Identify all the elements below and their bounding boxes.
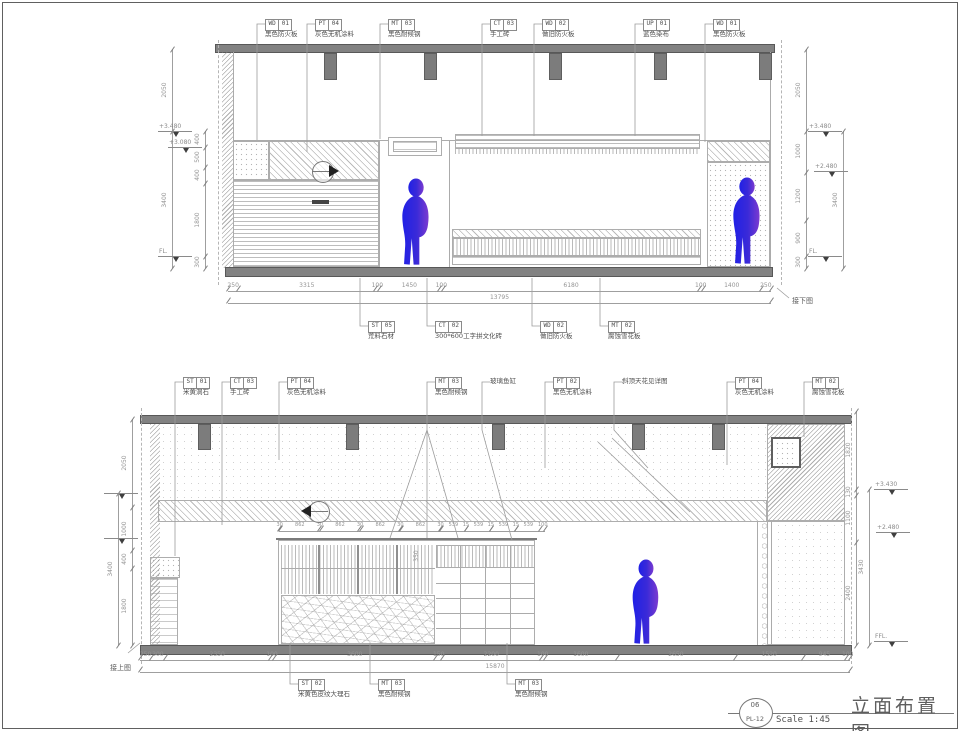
dim-label: 1400: [724, 283, 739, 289]
dim-label: 1200: [796, 188, 802, 203]
dim-label: 2400: [846, 586, 852, 601]
dim-label: 300: [195, 256, 201, 267]
callout-code: 04: [749, 378, 761, 388]
level-triangle: [891, 533, 897, 538]
dim-label: 130: [846, 486, 852, 497]
callout-code: 03: [504, 20, 516, 30]
callout-code: PT: [554, 378, 567, 388]
dim-line: [118, 493, 119, 645]
door-sign-inner: [393, 141, 437, 152]
callout-label: 黑色防火板: [265, 31, 298, 38]
section-marker: [308, 501, 330, 523]
bottom-upper-wall: [160, 424, 767, 500]
dim-line: [172, 49, 173, 268]
callout-code: 02: [312, 680, 324, 690]
callout-label: 手工砖: [490, 31, 510, 38]
dim-tick: [769, 297, 774, 303]
top-floor-slab: [225, 267, 773, 277]
callout-label: 灰色无机涂料: [287, 389, 326, 396]
level-triangle: [829, 172, 835, 177]
dim-label: 1000: [796, 144, 802, 159]
callout-code: 04: [301, 378, 313, 388]
bottom-ceiling-slab: [140, 415, 852, 424]
dim-label: 2200: [484, 652, 499, 658]
section-marker-line: [308, 511, 328, 512]
callout-leader: [635, 24, 643, 136]
stone-rubble-base: [281, 595, 435, 644]
dim-tick: [804, 265, 809, 271]
dim-line: [132, 419, 133, 645]
level-triangle: [823, 132, 829, 137]
dim-label: 539: [474, 523, 484, 528]
note-slash: [777, 288, 789, 298]
callout-leader: [427, 278, 435, 326]
callout-leader: [482, 24, 490, 136]
callout-code: PT: [316, 20, 329, 30]
dim-label: 1520: [762, 652, 777, 658]
callout-label: 斜顶天花见详图: [622, 378, 668, 385]
callout-label: 黑色防火板: [713, 31, 746, 38]
dim-label: 539: [524, 523, 534, 528]
callout-code: MT: [436, 378, 449, 388]
callout-code: PT: [736, 378, 749, 388]
drawer-divider-2: [485, 545, 486, 645]
callout-code: MT: [389, 20, 402, 30]
callout-code: MT: [516, 680, 529, 690]
level-triangle: [889, 490, 895, 495]
dim-line: [140, 672, 850, 673]
scale-label: Scale 1:45: [776, 715, 830, 725]
dim-label: 862: [416, 523, 426, 528]
callout-leader: [600, 278, 608, 326]
drawer-line-1: [436, 583, 535, 584]
dim-label: 3430: [859, 559, 865, 574]
dim-line: [205, 131, 206, 268]
callout-code: 03: [402, 20, 414, 30]
callout-label: 做旧防火板: [542, 31, 575, 38]
level-triangle: [173, 132, 179, 137]
callout-code: CT: [231, 378, 244, 388]
callout-label: 手工砖: [230, 389, 250, 396]
level-label: +3.480: [159, 123, 181, 130]
dim-label: 1100: [846, 511, 852, 526]
callout-code: MT: [379, 680, 392, 690]
callout-code: 02: [449, 322, 461, 332]
continuation-note: 接上图: [110, 663, 131, 673]
dim-label: 1820: [846, 442, 852, 457]
ceiling-beam: [712, 424, 725, 450]
scale-figure: [624, 559, 668, 645]
callout-label: 荒料石材: [368, 333, 394, 340]
ceiling-beam: [324, 53, 337, 80]
level-label: +3.480: [809, 123, 831, 130]
tv-panel: [312, 200, 329, 204]
fabric-fringe: [455, 149, 700, 154]
callout-label: 灰色无机涂料: [735, 389, 774, 396]
callout-code: 01: [197, 378, 209, 388]
top-door-jamb-right: [449, 140, 450, 267]
ceiling-beam: [198, 424, 211, 450]
callout-label: 黑色耐候钢: [388, 31, 421, 38]
ceiling-beam: [632, 424, 645, 450]
dim-label: 3315: [299, 283, 314, 289]
dim-tick: [848, 666, 853, 672]
callout-code: 03: [244, 378, 256, 388]
callout-code: 02: [567, 378, 579, 388]
drawing-title: 立面布置图: [851, 691, 960, 731]
ceiling-beam: [492, 424, 505, 450]
scale-figure: [725, 175, 769, 267]
level-label: +2.480: [815, 163, 837, 170]
dim-label: 3400: [162, 192, 168, 207]
bench-base: [452, 256, 701, 265]
callout-code: 01: [657, 20, 669, 30]
ceiling-beam: [759, 53, 772, 80]
dim-tick: [170, 265, 175, 271]
callout-code: 03: [529, 680, 541, 690]
ceiling-beam: [654, 53, 667, 80]
callout-leader: [360, 278, 368, 326]
wall-art-inner: [775, 441, 797, 464]
callout-code: 02: [554, 322, 566, 332]
top-right-panel-diagonal: [707, 141, 770, 162]
dim-label: 13795: [490, 295, 509, 301]
level-triangle: [119, 539, 125, 544]
ceiling-beam: [346, 424, 359, 450]
level-triangle: [173, 257, 179, 262]
left-cabinet: [150, 578, 178, 645]
level-label: +3.080: [169, 139, 191, 146]
level-triangle: [889, 642, 895, 647]
dim-line: [228, 303, 771, 304]
callout-code: CT: [491, 20, 504, 30]
section-marker-arrow: [329, 165, 339, 177]
callout-label: 腐蚀雪花板: [812, 389, 845, 396]
top-left-slat-wall: [233, 180, 379, 267]
drawer-line-2: [436, 598, 535, 599]
continuation-note: 接下图: [792, 296, 813, 306]
callout-code: 01: [279, 20, 291, 30]
top-grid-line-left: [218, 40, 219, 285]
dim-label: 2050: [162, 83, 168, 98]
callout-code: 02: [622, 322, 634, 332]
callout-code: WD: [543, 20, 556, 30]
section-marker-arrow: [301, 505, 311, 517]
drawer-line-3: [436, 613, 535, 614]
dim-label: 1000: [122, 521, 128, 536]
callout-leader: [380, 24, 388, 139]
sheet-number: 06: [739, 701, 771, 709]
dim-label: 400: [195, 170, 201, 181]
bottom-grid-line-left: [141, 408, 142, 664]
ceiling-beam: [549, 53, 562, 80]
callout-code: WD: [266, 20, 279, 30]
drawer-divider-3: [510, 545, 511, 645]
ceiling-bulkhead: [158, 500, 767, 522]
dim-label: 350: [414, 550, 420, 561]
sheet-code: PL-12: [739, 715, 771, 723]
dim-line: [856, 411, 857, 645]
dim-line: [140, 660, 850, 661]
callout-code: CT: [436, 322, 449, 332]
dim-label: 3400: [833, 192, 839, 207]
callout-label: 米黄洞石: [183, 389, 209, 396]
dim-label: 400: [195, 133, 201, 144]
level-label: FL.: [809, 248, 818, 255]
dim-label: 1800: [122, 599, 128, 614]
callout-code: UP: [644, 20, 657, 30]
dim-tick: [130, 642, 135, 648]
dim-label: 862: [375, 523, 385, 528]
callout-label: 米黄色皮纹大理石: [298, 691, 350, 698]
dim-line: [843, 131, 844, 268]
left-stone-band: [150, 557, 180, 578]
ceiling-beam: [424, 53, 437, 80]
callout-leader: [705, 24, 713, 142]
dim-label: 1600: [573, 652, 588, 658]
callout-label: 做旧防火板: [540, 333, 573, 340]
top-grid-line-right: [781, 40, 782, 285]
top-left-panel-stone: [233, 141, 269, 180]
drawing-sheet: 06 PL-12 Scale 1:45 立面布置图 WD01黑色防火板PT04灰…: [0, 0, 960, 731]
callout-label: 黑色无机涂料: [553, 389, 592, 396]
dim-tick: [867, 642, 872, 648]
dim-label: 900: [796, 232, 802, 243]
dim-label: 2350: [210, 652, 225, 658]
callout-code: 04: [329, 20, 341, 30]
callout-code: PT: [288, 378, 301, 388]
dim-tick: [854, 642, 859, 648]
dim-label: 2050: [796, 83, 802, 98]
top-ceiling-slab: [215, 44, 775, 53]
callout-label: 黑色耐候钢: [435, 389, 468, 396]
callout-code: ST: [299, 680, 312, 690]
scale-figure: [394, 177, 438, 267]
bench-slats: [452, 238, 701, 256]
fabric-valance: [455, 134, 700, 149]
callout-leader: [532, 278, 540, 326]
dim-label: 2650: [668, 652, 683, 658]
level-label: +3.430: [875, 481, 897, 488]
callout-label: 300*600工字拼文化砖: [435, 333, 502, 340]
dim-label: 539: [449, 523, 459, 528]
dim-tick: [116, 642, 121, 648]
bead-screen: [757, 521, 772, 645]
dim-label: 539: [499, 523, 509, 528]
dim-label: 400: [122, 553, 128, 564]
top-left-wall-hatch: [222, 52, 233, 268]
drawer-divider-1: [460, 545, 461, 645]
callout-code: ST: [369, 322, 382, 332]
callout-label: 黑色耐候钢: [378, 691, 411, 698]
dim-label: 6180: [563, 283, 578, 289]
callout-label: 玻璃鱼缸: [490, 378, 516, 385]
dim-label: 2050: [122, 455, 128, 470]
dim-label: 862: [295, 523, 305, 528]
dim-label: 15870: [485, 664, 504, 670]
callout-code: WD: [541, 322, 554, 332]
dim-tick: [203, 265, 208, 271]
callout-label: 黑色耐候钢: [515, 691, 548, 698]
dim-line: [869, 489, 870, 645]
callout-leader: [257, 24, 265, 140]
dim-label: 3400: [108, 561, 114, 576]
cabinet-post-2: [357, 545, 359, 594]
dim-label: 300: [796, 256, 802, 267]
callout-code: 03: [392, 680, 404, 690]
level-label: +2.480: [877, 524, 899, 531]
dim-label: 1800: [195, 212, 201, 227]
dim-label: 1450: [402, 283, 417, 289]
dim-label: 862: [335, 523, 345, 528]
callout-code: ST: [184, 378, 197, 388]
drawer-line-4: [436, 628, 535, 629]
callout-code: 02: [556, 20, 568, 30]
callout-label: 灰色无机涂料: [315, 31, 354, 38]
dim-label: 500: [195, 151, 201, 162]
callout-code: 03: [449, 378, 461, 388]
level-label: FFL.: [875, 633, 887, 640]
dim-label: 300: [152, 652, 163, 658]
dim-label: 3600: [347, 652, 362, 658]
cabinet-post-1: [318, 545, 320, 594]
dim-line: [228, 291, 771, 292]
callout-label: 蓝色染布: [643, 31, 669, 38]
level-triangle: [183, 148, 189, 153]
bench-seat: [452, 229, 701, 238]
dim-line: [806, 49, 807, 268]
callout-code: 05: [382, 322, 394, 332]
callout-leader: [534, 24, 542, 136]
level-triangle: [119, 494, 125, 499]
level-label: FL.: [159, 248, 168, 255]
dim-label: 945: [819, 652, 830, 658]
callout-code: MT: [609, 322, 622, 332]
callout-label: 腐蚀雪花板: [608, 333, 641, 340]
callout-code: MT: [813, 378, 826, 388]
cabinet-post-3: [396, 545, 398, 594]
level-triangle: [823, 257, 829, 262]
top-wall-line-right: [770, 52, 771, 268]
right-column-lower: [767, 521, 845, 645]
dim-tick: [841, 265, 846, 271]
callout-code: 02: [826, 378, 838, 388]
callout-code: 01: [727, 20, 739, 30]
top-door-jamb-left: [379, 140, 380, 267]
callout-code: WD: [714, 20, 727, 30]
